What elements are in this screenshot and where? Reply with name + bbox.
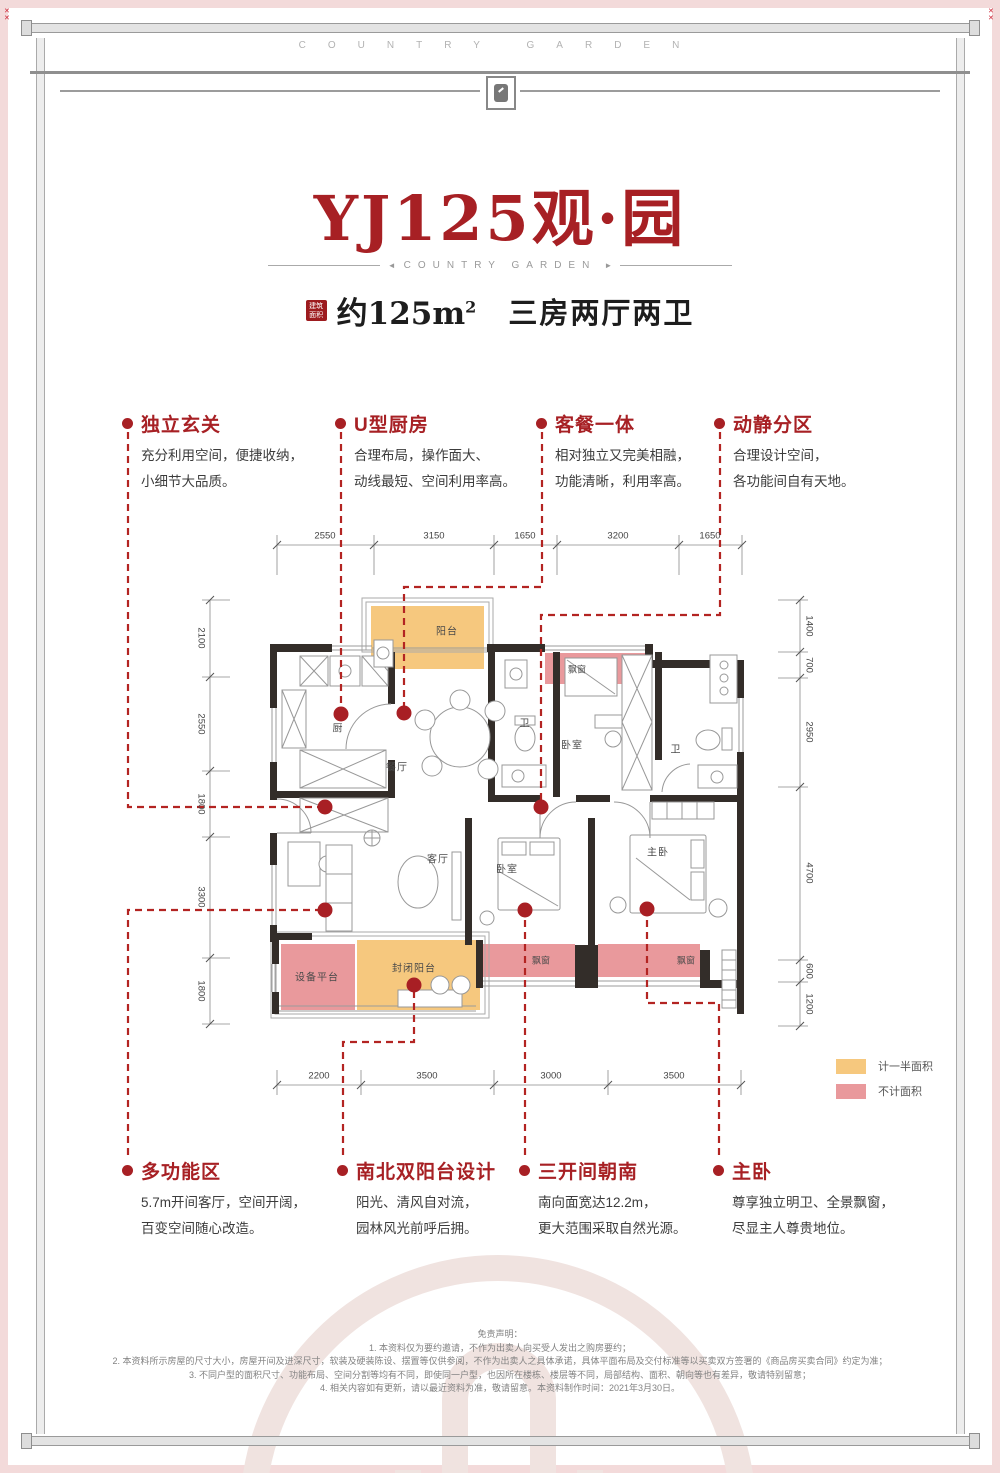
legend: 计一半面积 不计面积: [836, 1058, 933, 1108]
frame-rule: [60, 90, 480, 92]
room-label-balcony: 阳台: [436, 623, 458, 638]
deco-brand-text: COUNTRY GARDEN: [404, 260, 597, 271]
page-title: YJ125观·园: [0, 168, 1000, 258]
room-label-baywindow-top: 飘窗: [568, 663, 586, 676]
bullet-dot: [122, 418, 133, 429]
feature-master-bedroom: 主卧 尊享独立明卫、全景飘窗，尽显主人尊贵地位。: [713, 1157, 921, 1242]
bullet-dot: [713, 1165, 724, 1176]
dim-label: 4700: [804, 862, 815, 883]
dim-label: 2200: [308, 1071, 329, 1082]
bullet-dot: [536, 418, 547, 429]
frame-rule: [520, 90, 940, 92]
room-label-bedroom1: 卧室: [561, 737, 583, 752]
dim-label: 3000: [540, 1071, 561, 1082]
feature-double-balcony: 南北双阳台设计 阳光、清风自对流，园林风光前呼后拥。: [337, 1157, 545, 1242]
dim-label: 1200: [804, 993, 815, 1014]
feature-zoning: 动静分区 合理设计空间，各功能间自有天地。: [714, 410, 922, 495]
bullet-dot: [519, 1165, 530, 1176]
dim-label: 700: [804, 657, 815, 673]
frame-cap: [21, 20, 32, 36]
dim-label: 3300: [196, 886, 207, 907]
bullet-dot: [122, 1165, 133, 1176]
feature-multifunction: 多功能区 5.7m开间客厅，空间开阔，百变空间随心改造。: [122, 1157, 330, 1242]
dim-label: 2100: [196, 627, 207, 648]
dim-label: 1650: [699, 531, 720, 542]
legend-item-excluded: 不计面积: [836, 1083, 933, 1099]
bullet-dot: [337, 1165, 348, 1176]
area-value: 约125m2: [337, 288, 477, 333]
dim-label: 3500: [663, 1071, 684, 1082]
bullet-dot: [335, 418, 346, 429]
room-label-dining: 餐厅: [386, 759, 408, 774]
frame-column-right: [956, 38, 965, 1434]
frame-column-left: [36, 38, 45, 1434]
disclaimer-line: 2. 本资料所示房屋的尺寸大小，房屋开间及进深尺寸，软装及硬装陈设、摆置等仅供参…: [0, 1355, 1000, 1369]
dim-label: 3500: [416, 1071, 437, 1082]
room-label-living: 客厅: [427, 851, 449, 866]
dim-label: 2550: [314, 531, 335, 542]
legend-swatch-orange: [836, 1059, 866, 1074]
room-label-equipment: 设备平台: [295, 969, 339, 984]
crop-mark: ✕✕: [4, 8, 10, 22]
disclaimer: 免责声明： 1. 本资料仅为要约邀请，不作为出卖人向买受人发出之购房要约； 2.…: [0, 1328, 1000, 1396]
room-label-enclosed-balcony: 封闭阳台: [392, 960, 436, 975]
disclaimer-line: 1. 本资料仅为要约邀请，不作为出卖人向买受人发出之购房要约；: [0, 1342, 1000, 1356]
disclaimer-line: 3. 不同户型的面积尺寸、功能布局、空间分割等均有不同，即使同一户型，也因所在楼…: [0, 1369, 1000, 1383]
legend-swatch-pink: [836, 1084, 866, 1099]
area-badge: 建筑 面积: [306, 300, 327, 321]
floorplan-poster: ✕✕ ✕✕ COUNTRY GARDEN YJ125观·园 ◄ COUNTRY …: [0, 0, 1000, 1473]
frame-emblem-icon: [486, 76, 516, 110]
legend-item-half-area: 计一半面积: [836, 1058, 933, 1074]
dim-label: 1800: [196, 793, 207, 814]
room-label-master: 主卧: [647, 844, 669, 859]
feature-u-kitchen: U型厨房 合理布局，操作面大、动线最短、空间利用率高。: [335, 410, 543, 495]
frame-cap: [969, 1433, 980, 1449]
disclaimer-title: 免责声明：: [0, 1328, 1000, 1342]
dim-label: 2950: [804, 721, 815, 742]
frame-cap: [21, 1433, 32, 1449]
dim-label: 600: [804, 963, 815, 979]
layout-spec: 三房两厅两卫: [508, 290, 694, 332]
room-label-bath1: 卫: [520, 715, 531, 730]
room-label-baywindow-1: 飘窗: [532, 954, 550, 967]
feature-south-facing: 三开间朝南 南向面宽达12.2m，更大范围采取自然光源。: [519, 1157, 727, 1242]
frame-rule: [30, 71, 970, 74]
dim-label: 2550: [196, 713, 207, 734]
spec-line: 建筑 面积 约125m2 三房两厅两卫: [0, 288, 1000, 333]
bullet-dot: [714, 418, 725, 429]
frame-cap: [969, 20, 980, 36]
feature-entry-hall: 独立玄关 充分利用空间，便捷收纳，小细节大品质。: [122, 410, 330, 495]
dim-label: 1800: [196, 980, 207, 1001]
dim-label: 3150: [423, 531, 444, 542]
room-label-baywindow-2: 飘窗: [677, 954, 695, 967]
arrow-left-icon: ◄: [388, 261, 396, 270]
crop-mark: ✕✕: [988, 8, 994, 22]
title-divider: ◄ COUNTRY GARDEN ►: [0, 260, 1000, 271]
disclaimer-line: 4. 相关内容如有更新，请以最近资料为准，敬请留意。本资料制作时间：2021年3…: [0, 1382, 1000, 1396]
room-label-kitchen: 厨: [333, 720, 344, 735]
frame-bar-bottom: [30, 1436, 970, 1446]
arrow-right-icon: ►: [604, 261, 612, 270]
dim-label: 1400: [804, 615, 815, 636]
brand-letterspaced: COUNTRY GARDEN: [0, 40, 1000, 51]
feature-dining-living: 客餐一体 相对独立又完美相融，功能清晰，利用率高。: [536, 410, 744, 495]
dim-label: 3200: [607, 531, 628, 542]
frame-bar-top: [30, 23, 970, 33]
room-label-bath2: 卫: [671, 741, 682, 756]
room-label-bedroom2: 卧室: [496, 861, 518, 876]
dim-label: 1650: [514, 531, 535, 542]
